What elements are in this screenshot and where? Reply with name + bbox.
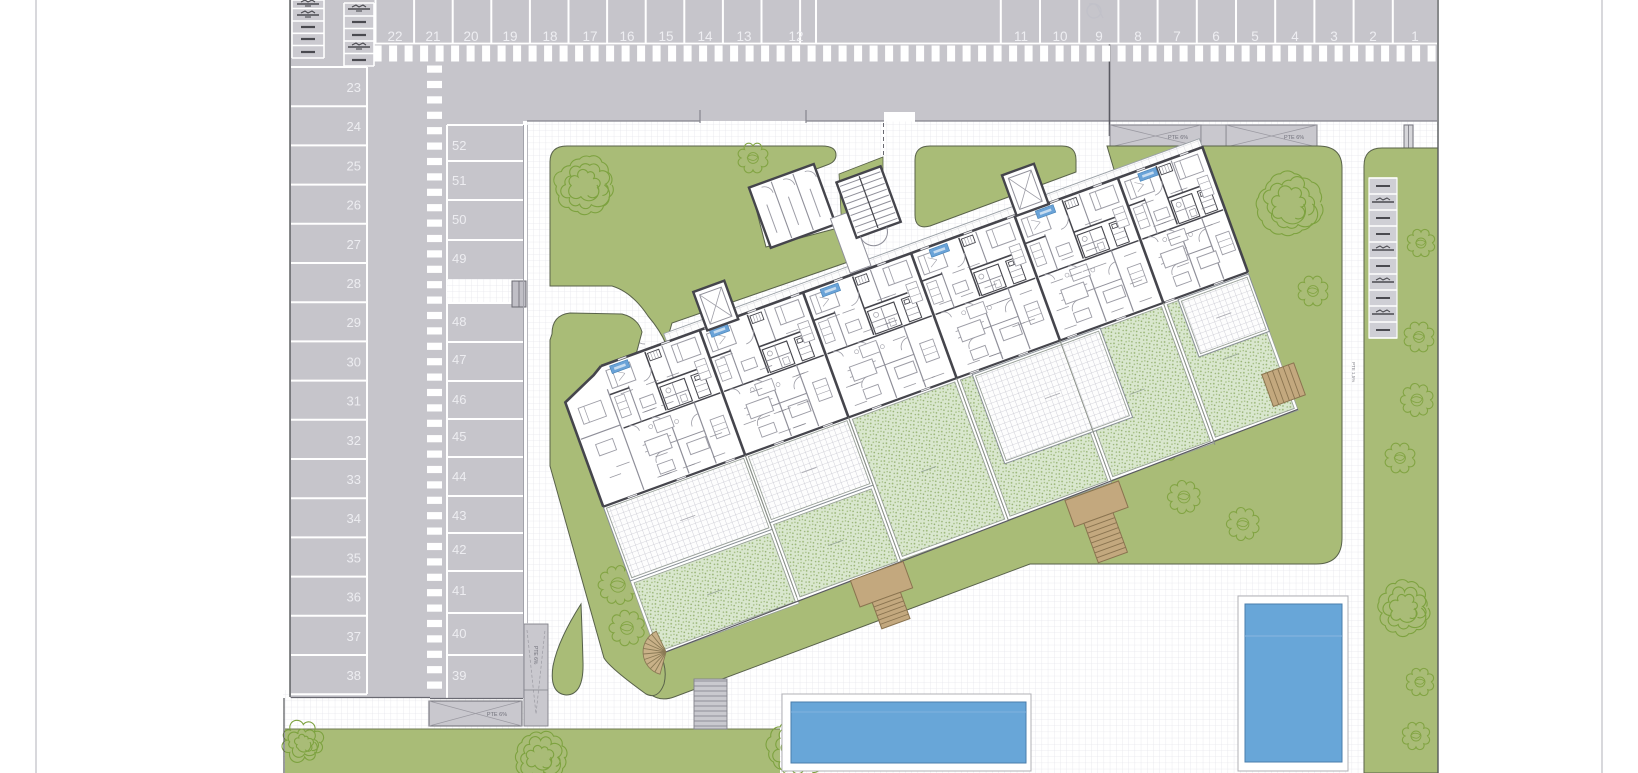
- svg-text:27: 27: [347, 237, 361, 252]
- svg-text:5: 5: [1251, 29, 1259, 44]
- svg-text:49: 49: [452, 251, 466, 266]
- svg-text:50: 50: [452, 212, 466, 227]
- svg-text:46: 46: [452, 392, 466, 407]
- svg-text:35: 35: [347, 550, 361, 565]
- svg-text:33: 33: [347, 472, 361, 487]
- svg-text:47: 47: [452, 352, 466, 367]
- svg-text:29: 29: [347, 315, 361, 330]
- svg-text:52: 52: [452, 138, 466, 153]
- svg-text:12: 12: [788, 29, 803, 44]
- svg-text:25: 25: [347, 158, 361, 173]
- svg-text:17: 17: [582, 29, 597, 44]
- svg-text:38: 38: [347, 668, 361, 683]
- svg-text:7: 7: [1173, 29, 1181, 44]
- svg-text:PTE 6%: PTE 6%: [1168, 135, 1188, 141]
- svg-text:11: 11: [1014, 29, 1028, 44]
- svg-text:10: 10: [1052, 29, 1067, 44]
- svg-text:48: 48: [452, 314, 466, 329]
- svg-text:36: 36: [347, 590, 361, 605]
- svg-text:51: 51: [452, 173, 466, 188]
- svg-text:15: 15: [658, 29, 673, 44]
- svg-text:41: 41: [452, 583, 466, 598]
- svg-text:6: 6: [1212, 29, 1220, 44]
- svg-text:22: 22: [387, 29, 402, 44]
- svg-text:34: 34: [347, 511, 361, 526]
- svg-text:PTE 6%: PTE 6%: [532, 646, 538, 665]
- svg-text:31: 31: [347, 394, 361, 409]
- svg-text:37: 37: [347, 629, 361, 644]
- svg-text:30: 30: [347, 354, 361, 369]
- svg-text:24: 24: [347, 119, 361, 134]
- svg-text:1: 1: [1411, 29, 1419, 44]
- svg-text:PTE 6%: PTE 6%: [1284, 135, 1304, 141]
- svg-text:8: 8: [1134, 29, 1142, 44]
- svg-text:40: 40: [452, 626, 466, 641]
- svg-text:26: 26: [347, 198, 361, 213]
- svg-text:23: 23: [347, 80, 361, 95]
- svg-text:9: 9: [1095, 29, 1103, 44]
- svg-text:39: 39: [452, 668, 466, 683]
- svg-text:45: 45: [452, 429, 466, 444]
- svg-text:44: 44: [452, 469, 466, 484]
- svg-text:20: 20: [463, 29, 478, 44]
- svg-text:28: 28: [347, 276, 361, 291]
- svg-text:2: 2: [1369, 29, 1377, 44]
- svg-text:PTE 6%: PTE 6%: [487, 712, 507, 718]
- svg-text:PTE 1,5%: PTE 1,5%: [1351, 362, 1356, 382]
- svg-text:14: 14: [697, 29, 713, 44]
- svg-text:3: 3: [1330, 29, 1338, 44]
- svg-text:21: 21: [425, 29, 440, 44]
- svg-text:43: 43: [452, 508, 466, 523]
- svg-text:19: 19: [502, 29, 517, 44]
- svg-text:32: 32: [347, 433, 361, 448]
- svg-text:16: 16: [619, 29, 634, 44]
- svg-text:13: 13: [736, 29, 751, 44]
- svg-text:18: 18: [542, 29, 557, 44]
- svg-text:4: 4: [1291, 29, 1299, 44]
- svg-text:42: 42: [452, 542, 466, 557]
